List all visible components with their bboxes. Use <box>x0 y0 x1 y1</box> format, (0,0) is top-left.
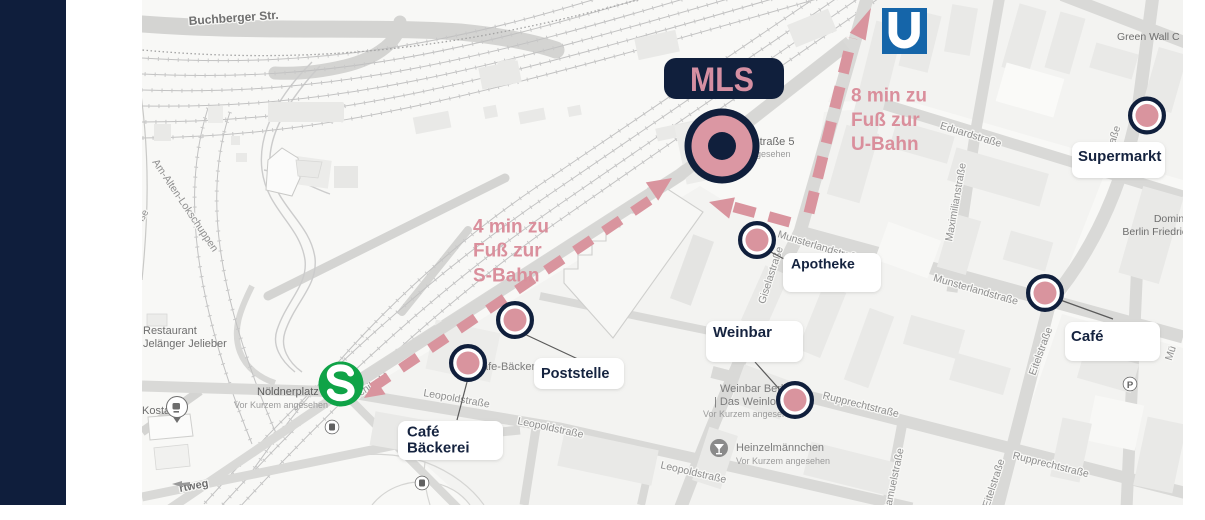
svg-text:P: P <box>1127 380 1134 391</box>
svg-text:| Das Weinlo: | Das Weinlo <box>714 396 776 408</box>
svg-text:Poststelle: Poststelle <box>541 366 610 382</box>
svg-text:Green Wall C: Green Wall C <box>1117 31 1180 43</box>
svg-text:U-Bahn: U-Bahn <box>851 134 919 155</box>
svg-text:Supermarkt: Supermarkt <box>1078 148 1161 165</box>
svg-text:MLS: MLS <box>690 61 754 99</box>
svg-text:Café: Café <box>407 424 440 441</box>
svg-text:Café: Café <box>1071 328 1104 345</box>
svg-text:Weinbar: Weinbar <box>713 324 772 341</box>
svg-text:Vor Kurzem angesehen: Vor Kurzem angesehen <box>736 456 830 466</box>
svg-text:Fuß zur: Fuß zur <box>473 241 542 262</box>
svg-text:Heinzelmännchen: Heinzelmännchen <box>736 442 824 454</box>
svg-text:Apotheke: Apotheke <box>791 256 855 272</box>
svg-text:Berlin Friedrich: Berlin Friedrich <box>1122 226 1183 238</box>
svg-text:Bäckerei: Bäckerei <box>407 440 470 457</box>
svg-text:Domino': Domino' <box>1154 213 1183 225</box>
svg-text:Fuß zur: Fuß zur <box>851 110 920 131</box>
svg-text:8 min zu: 8 min zu <box>851 86 927 107</box>
svg-text:Vor Kurzem angeseh: Vor Kurzem angeseh <box>703 409 787 419</box>
svg-text:Nöldnerplatz: Nöldnerplatz <box>257 386 319 398</box>
svg-text:Vor Kurzem angesehen: Vor Kurzem angesehen <box>234 400 328 410</box>
svg-text:S-Bahn: S-Bahn <box>473 266 540 287</box>
svg-text:4 min zu: 4 min zu <box>473 217 549 238</box>
svg-text:gesehen: gesehen <box>756 149 791 159</box>
svg-text:Restaurant: Restaurant <box>143 325 197 337</box>
svg-text:Jelänger Jelieber: Jelänger Jelieber <box>143 338 227 350</box>
